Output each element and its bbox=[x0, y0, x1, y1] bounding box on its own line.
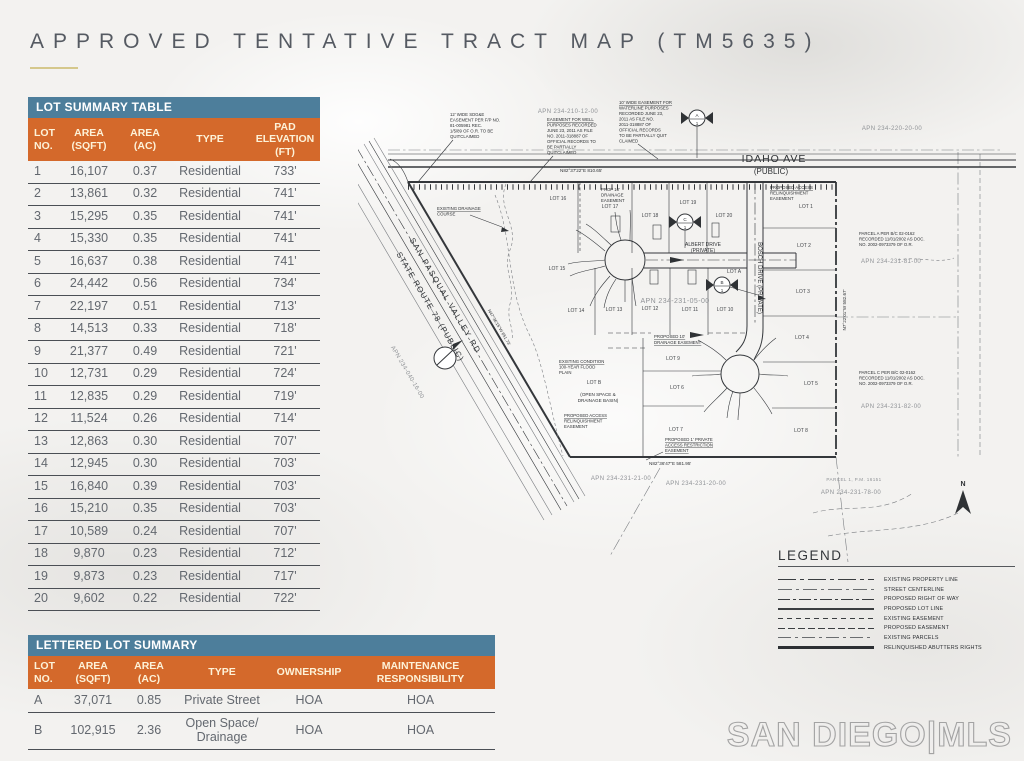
page: APPROVED TENTATIVE TRACT MAP (TM5635) LO… bbox=[0, 0, 1024, 761]
svg-text:PARCEL C PER B/C 02-0162: PARCEL C PER B/C 02-0162 bbox=[859, 370, 916, 375]
legend-row: PROPOSED LOT LINE bbox=[778, 604, 1015, 614]
cell-pad-elevation: 733' bbox=[250, 161, 320, 184]
svg-text:PROPOSED ACCESS: PROPOSED ACCESS bbox=[564, 413, 607, 418]
svg-text:EASEMENT: EASEMENT bbox=[564, 424, 588, 429]
lot-label: LOT 11 bbox=[682, 307, 698, 313]
legend-row: EXISTING PARCELS bbox=[778, 633, 1015, 643]
svg-text:PROPOSED 1' PRIVATE: PROPOSED 1' PRIVATE bbox=[665, 437, 713, 442]
table-row: 19 9,873 0.23 Residential 717' bbox=[28, 566, 320, 589]
svg-text:JUNE 23, 2011 AS FILE: JUNE 23, 2011 AS FILE bbox=[547, 128, 593, 133]
bottom-apns: APN 234-231-21-00 APN 234-231-20-00 PARC… bbox=[591, 476, 882, 496]
legend-line-street-centerline bbox=[778, 589, 874, 590]
cell-type: Residential bbox=[170, 521, 250, 544]
legend-line-relinquished-abutters bbox=[778, 646, 874, 649]
apn-top-right: APN 234-220-20-00 bbox=[862, 126, 922, 132]
legend-line-proposed-lot-line bbox=[778, 608, 874, 609]
svg-text:NO. 2002-0973379 OF O.R.: NO. 2002-0973379 OF O.R. bbox=[859, 381, 913, 386]
apn-bottom-center: APN 234-231-20-00 bbox=[666, 481, 726, 487]
cell-area-sqft: 16,637 bbox=[58, 251, 120, 274]
svg-text:(OPEN SPACE &: (OPEN SPACE & bbox=[580, 392, 615, 397]
cell-pad-elevation: 741' bbox=[250, 251, 320, 274]
lot-label: LOT 8 bbox=[794, 428, 808, 434]
cell-area-ac: 0.49 bbox=[120, 341, 170, 364]
lot-summary-header-row: LOT NO. AREA (SQFT) AREA (AC) TYPE PAD E… bbox=[28, 118, 320, 161]
cell-area-sqft: 9,873 bbox=[58, 566, 120, 589]
cell-area-sqft: 9,870 bbox=[58, 544, 120, 567]
table-row: 7 22,197 0.51 Residential 713' bbox=[28, 296, 320, 319]
cell-type: Residential bbox=[170, 364, 250, 387]
cell-area-ac: 0.30 bbox=[120, 454, 170, 477]
svg-text:PURPOSES RECORDED: PURPOSES RECORDED bbox=[547, 123, 597, 128]
svg-text:RECORDED JUNE 23,: RECORDED JUNE 23, bbox=[619, 111, 663, 116]
column-header: AREA (AC) bbox=[126, 656, 172, 689]
cell-area-ac: 0.24 bbox=[120, 521, 170, 544]
svg-text:QUITCLAIMED: QUITCLAIMED bbox=[450, 134, 479, 139]
cell-area-ac: 0.33 bbox=[120, 319, 170, 342]
cell-type: Residential bbox=[170, 206, 250, 229]
page-title: APPROVED TENTATIVE TRACT MAP (TM5635) bbox=[30, 30, 820, 54]
cell-pad-elevation: 707' bbox=[250, 521, 320, 544]
legend-items: EXISTING PROPERTY LINE STREET CENTERLINE… bbox=[778, 575, 1015, 653]
lot-label: LOT A bbox=[727, 269, 742, 275]
cell-maintenance: HOA bbox=[346, 689, 495, 713]
svg-text:B: B bbox=[720, 280, 723, 285]
cell-lot-no: 11 bbox=[28, 386, 58, 409]
cell-type: Residential bbox=[170, 184, 250, 207]
svg-text:DRAINAGE BASIN): DRAINAGE BASIN) bbox=[578, 398, 619, 403]
cell-area-sqft: 14,513 bbox=[58, 319, 120, 342]
svg-text:DRAINAGE EASEMENT: DRAINAGE EASEMENT bbox=[654, 340, 702, 345]
idaho-ave-road: IDAHO AVE (PUBLIC) N82°37'22"E 810.65' bbox=[388, 153, 1016, 182]
lot-label: LOT 19 bbox=[680, 200, 697, 206]
table-row: 1 16,107 0.37 Residential 733' bbox=[28, 161, 320, 184]
cell-type: Residential bbox=[170, 409, 250, 432]
apn-top-center: APN 234-210-12-00 bbox=[538, 109, 598, 115]
cell-area-sqft: 10,589 bbox=[58, 521, 120, 544]
svg-text:TO BE PARTIALLY QUIT: TO BE PARTIALLY QUIT bbox=[619, 133, 667, 138]
cell-area-sqft: 13,861 bbox=[58, 184, 120, 207]
cell-area-ac: 0.30 bbox=[120, 431, 170, 454]
apn-center: APN 234-231-05-00 bbox=[640, 298, 709, 305]
cell-area-ac: 0.22 bbox=[120, 589, 170, 612]
table-row: 10 12,731 0.29 Residential 724' bbox=[28, 364, 320, 387]
cell-area-ac: 0.29 bbox=[120, 386, 170, 409]
cell-pad-elevation: 724' bbox=[250, 364, 320, 387]
cell-pad-elevation: 712' bbox=[250, 544, 320, 567]
north-arrow: N bbox=[955, 481, 971, 514]
lot-label: LOT B bbox=[587, 380, 602, 386]
column-header: LOT NO. bbox=[28, 656, 60, 689]
cell-area-sqft: 102,915 bbox=[60, 713, 126, 750]
cell-pad-elevation: 734' bbox=[250, 274, 320, 297]
legend-line-existing-property bbox=[778, 579, 874, 580]
detail-marker-a: A 1 bbox=[681, 110, 713, 158]
lot-label: LOT 4 bbox=[795, 335, 809, 341]
cell-area-ac: 0.35 bbox=[120, 206, 170, 229]
svg-text:1: 1 bbox=[721, 288, 724, 293]
cell-pad-elevation: 713' bbox=[250, 296, 320, 319]
cell-area-ac: 0.85 bbox=[126, 689, 172, 713]
svg-text:PARCEL A PER B/C 02-0162: PARCEL A PER B/C 02-0162 bbox=[859, 231, 915, 236]
table-row: 9 21,377 0.49 Residential 721' bbox=[28, 341, 320, 364]
apn-parcel-c: APN 234-231-82-00 bbox=[861, 404, 921, 410]
cell-pad-elevation: 703' bbox=[250, 454, 320, 477]
cell-area-sqft: 12,835 bbox=[58, 386, 120, 409]
cell-area-ac: 2.36 bbox=[126, 713, 172, 750]
svg-text:100-YEAR FLOOD: 100-YEAR FLOOD bbox=[559, 365, 595, 370]
lot-label: LOT 9 bbox=[666, 356, 680, 362]
lot-summary-table-title: LOT SUMMARY TABLE bbox=[28, 97, 320, 118]
cell-area-ac: 0.26 bbox=[120, 409, 170, 432]
lot-label: LOT 6 bbox=[670, 385, 684, 391]
cell-lot-no: 20 bbox=[28, 589, 58, 612]
lettered-lot-summary-table: LETTERED LOT SUMMARY LOT NO. AREA (SQFT)… bbox=[28, 635, 495, 750]
svg-text:OFFICIAL RECORDS TO: OFFICIAL RECORDS TO bbox=[547, 139, 597, 144]
column-header: AREA (SQFT) bbox=[58, 118, 120, 161]
cell-area-sqft: 15,295 bbox=[58, 206, 120, 229]
cell-lot-no: 7 bbox=[28, 296, 58, 319]
legend-row: EXISTING PROPERTY LINE bbox=[778, 575, 1015, 585]
svg-text:PLAIN: PLAIN bbox=[559, 370, 571, 375]
legend-row: PROPOSED EASEMENT bbox=[778, 623, 1015, 633]
cell-pad-elevation: 714' bbox=[250, 409, 320, 432]
cell-lot-no: 3 bbox=[28, 206, 58, 229]
cell-pad-elevation: 718' bbox=[250, 319, 320, 342]
lot-label: LOT 1 bbox=[799, 204, 813, 210]
svg-text:PROP 10': PROP 10' bbox=[601, 187, 620, 192]
cell-type: Residential bbox=[170, 431, 250, 454]
cell-area-ac: 0.38 bbox=[120, 251, 170, 274]
cell-area-ac: 0.23 bbox=[120, 544, 170, 567]
column-header: MAINTENANCE RESPONSIBILITY bbox=[346, 656, 495, 689]
cell-type: Residential bbox=[170, 386, 250, 409]
apn-parcel-a: APN 234-231-81-00 bbox=[861, 259, 921, 265]
cell-area-sqft: 15,210 bbox=[58, 499, 120, 522]
table-row: 20 9,602 0.22 Residential 722' bbox=[28, 589, 320, 612]
lot-label: LOT 16 bbox=[550, 196, 567, 202]
table-row: 18 9,870 0.23 Residential 712' bbox=[28, 544, 320, 567]
apn-bottom-left: APN 234-231-21-00 bbox=[591, 476, 651, 482]
table-row: A 37,071 0.85 Private Street HOA HOA bbox=[28, 689, 495, 713]
svg-text:2011 AS FILE NO.: 2011 AS FILE NO. bbox=[619, 117, 654, 122]
svg-text:EASEMENT FOR WELL: EASEMENT FOR WELL bbox=[547, 117, 594, 122]
cell-area-ac: 0.37 bbox=[120, 161, 170, 184]
cell-type: Residential bbox=[170, 341, 250, 364]
svg-text:EXISTING DRAINAGE: EXISTING DRAINAGE bbox=[437, 206, 481, 211]
svg-text:1/5/89 OF O.R. TO BE: 1/5/89 OF O.R. TO BE bbox=[450, 129, 493, 134]
cell-type: Residential bbox=[170, 566, 250, 589]
idaho-ave-public-label: (PUBLIC) bbox=[754, 167, 789, 176]
cell-area-sqft: 16,107 bbox=[58, 161, 120, 184]
cell-area-sqft: 21,377 bbox=[58, 341, 120, 364]
cell-area-ac: 0.32 bbox=[120, 184, 170, 207]
cell-lot-no: 5 bbox=[28, 251, 58, 274]
column-header: AREA (SQFT) bbox=[60, 656, 126, 689]
legend: LEGEND EXISTING PROPERTY LINE STREET CEN… bbox=[778, 548, 1015, 653]
svg-text:1: 1 bbox=[684, 225, 687, 230]
lot-label: LOT 20 bbox=[716, 213, 733, 219]
svg-text:ACCESS RESTRICTION: ACCESS RESTRICTION bbox=[665, 443, 713, 448]
cell-type: Residential bbox=[170, 589, 250, 612]
cell-area-sqft: 12,945 bbox=[58, 454, 120, 477]
cell-pad-elevation: 741' bbox=[250, 229, 320, 252]
lot-label: LOT 2 bbox=[797, 243, 811, 249]
cell-pad-elevation: 722' bbox=[250, 589, 320, 612]
cell-pad-elevation: 719' bbox=[250, 386, 320, 409]
svg-text:RELINQUISHMENT: RELINQUISHMENT bbox=[770, 191, 809, 196]
cell-pad-elevation: 717' bbox=[250, 566, 320, 589]
svg-text:12' WIDE SDG&E: 12' WIDE SDG&E bbox=[450, 112, 484, 117]
svg-text:10' WIDE EASEMENT FOR: 10' WIDE EASEMENT FOR bbox=[619, 100, 672, 105]
svg-text:EXISTING CONDITION: EXISTING CONDITION bbox=[559, 359, 604, 364]
apn-west-road: APN 234-040-16-00 bbox=[389, 345, 425, 400]
cell-pad-elevation: 741' bbox=[250, 184, 320, 207]
legend-row: PROPOSED RIGHT OF WAY bbox=[778, 594, 1015, 604]
lot-label: LOT 7 bbox=[669, 427, 683, 433]
lettered-lot-header-row: LOT NO. AREA (SQFT) AREA (AC) TYPE OWNER… bbox=[28, 656, 495, 689]
cell-type: Private Street bbox=[172, 689, 272, 713]
cell-ownership: HOA bbox=[272, 689, 346, 713]
cell-lot-no: 9 bbox=[28, 341, 58, 364]
cell-lot-no: 14 bbox=[28, 454, 58, 477]
cell-area-sqft: 15,330 bbox=[58, 229, 120, 252]
table-row: 15 16,840 0.39 Residential 703' bbox=[28, 476, 320, 499]
cell-type: Residential bbox=[170, 499, 250, 522]
lot-summary-body: 1 16,107 0.37 Residential 733' 2 13,861 … bbox=[28, 161, 320, 611]
table-row: 8 14,513 0.33 Residential 718' bbox=[28, 319, 320, 342]
column-header: TYPE bbox=[170, 118, 250, 161]
bearing-east: N7°22'01"W 582.67' bbox=[842, 289, 847, 330]
cell-type: Residential bbox=[170, 319, 250, 342]
cell-area-ac: 0.56 bbox=[120, 274, 170, 297]
cell-lot-no: 8 bbox=[28, 319, 58, 342]
table-row: 3 15,295 0.35 Residential 741' bbox=[28, 206, 320, 229]
subdivision-boundary bbox=[408, 182, 836, 457]
cell-pad-elevation: 707' bbox=[250, 431, 320, 454]
svg-text:N: N bbox=[960, 481, 965, 488]
table-row: 2 13,861 0.32 Residential 741' bbox=[28, 184, 320, 207]
albert-drive-private-label: (PRIVATE) bbox=[691, 248, 715, 254]
legend-row: EXISTING EASEMENT bbox=[778, 614, 1015, 624]
cell-area-ac: 0.35 bbox=[120, 499, 170, 522]
parcel-notes-right: PARCEL A PER B/C 02-0162 RECORDED 11/01/… bbox=[859, 231, 954, 410]
cell-lot-no: 17 bbox=[28, 521, 58, 544]
cell-pad-elevation: 721' bbox=[250, 341, 320, 364]
lot-label: LOT 5 bbox=[804, 381, 818, 387]
svg-text:RELINQUISHMENT: RELINQUISHMENT bbox=[564, 419, 603, 424]
svg-text:NO. 2011-318887 OF: NO. 2011-318887 OF bbox=[547, 134, 588, 139]
cell-lot-no: 15 bbox=[28, 476, 58, 499]
svg-text:81-005981 REC.: 81-005981 REC. bbox=[450, 123, 482, 128]
svg-text:2011-318887 OF: 2011-318887 OF bbox=[619, 122, 652, 127]
tract-map: IDAHO AVE (PUBLIC) N82°37'22"E 810.65' S… bbox=[358, 88, 1018, 562]
table-row: 16 15,210 0.35 Residential 703' bbox=[28, 499, 320, 522]
cell-area-sqft: 12,863 bbox=[58, 431, 120, 454]
cell-lot-no: 2 bbox=[28, 184, 58, 207]
legend-row: RELINQUISHED ABUTTERS RIGHTS bbox=[778, 643, 1015, 653]
column-header: TYPE bbox=[172, 656, 272, 689]
lot-label: LOT 17 bbox=[602, 204, 619, 210]
cell-type: Residential bbox=[170, 274, 250, 297]
lot-label: LOT 13 bbox=[606, 307, 623, 313]
cell-lot-no: 12 bbox=[28, 409, 58, 432]
lot-label: LOT 15 bbox=[549, 266, 566, 272]
cell-type: Residential bbox=[170, 454, 250, 477]
cell-area-sqft: 9,602 bbox=[58, 589, 120, 612]
bearing-top: N82°37'22"E 810.65' bbox=[560, 168, 602, 173]
table-row: 6 24,442 0.56 Residential 734' bbox=[28, 274, 320, 297]
cell-type: Residential bbox=[170, 296, 250, 319]
sandiego-mls-watermark: SAN DIEGO|MLS bbox=[727, 716, 1012, 755]
lot-label: LOT 10 bbox=[717, 307, 734, 313]
easement-notes-top: 12' WIDE SDG&E EASEMENT PER F/P NO. 81-0… bbox=[418, 100, 922, 182]
cell-maintenance: HOA bbox=[346, 713, 495, 750]
cell-lot-no: A bbox=[28, 689, 60, 713]
column-header: AREA (AC) bbox=[120, 118, 170, 161]
bearing-bottom: N82°36'47"E 581.95' bbox=[649, 461, 691, 466]
bearing-west: N47°36'15"W 651.73' bbox=[487, 308, 512, 346]
cell-area-sqft: 37,071 bbox=[60, 689, 126, 713]
cell-type: Residential bbox=[170, 161, 250, 184]
bosch-drive-label: BOSCH DRIVE (PRIVATE) bbox=[756, 242, 762, 314]
cell-area-ac: 0.29 bbox=[120, 364, 170, 387]
parcel-1-label: PARCEL 1, P.M. 16151 bbox=[826, 477, 881, 482]
table-row: B 102,915 2.36 Open Space/ Drainage HOA … bbox=[28, 713, 495, 750]
cell-lot-no: 1 bbox=[28, 161, 58, 184]
cell-type: Residential bbox=[170, 544, 250, 567]
cell-lot-no: 4 bbox=[28, 229, 58, 252]
cell-lot-no: 19 bbox=[28, 566, 58, 589]
svg-text:QUITCLAIMED: QUITCLAIMED bbox=[547, 150, 576, 155]
lettered-lot-summary-title: LETTERED LOT SUMMARY bbox=[28, 635, 495, 656]
gold-rule bbox=[30, 67, 78, 69]
legend-title: LEGEND bbox=[778, 548, 1015, 567]
cell-area-ac: 0.35 bbox=[120, 229, 170, 252]
cell-area-sqft: 24,442 bbox=[58, 274, 120, 297]
table-row: 11 12,835 0.29 Residential 719' bbox=[28, 386, 320, 409]
cell-lot-no: B bbox=[28, 713, 60, 750]
svg-text:EASEMENT: EASEMENT bbox=[770, 196, 794, 201]
svg-text:NO. 2002-0973379 OF O.R.: NO. 2002-0973379 OF O.R. bbox=[859, 242, 913, 247]
cell-lot-no: 6 bbox=[28, 274, 58, 297]
svg-text:BE PARTIALLY: BE PARTIALLY bbox=[547, 145, 577, 150]
legend-line-existing-parcels bbox=[778, 637, 874, 638]
legend-line-existing-easement bbox=[778, 618, 874, 619]
legend-row: STREET CENTERLINE bbox=[778, 585, 1015, 595]
svg-text:DRAINAGE: DRAINAGE bbox=[601, 193, 624, 198]
svg-text:RECORDED 11/01/2002 AS DOC.: RECORDED 11/01/2002 AS DOC. bbox=[859, 376, 925, 381]
svg-text:EASEMENT PER F/P NO.: EASEMENT PER F/P NO. bbox=[450, 118, 500, 123]
column-header: PAD ELEVATION (FT) bbox=[250, 118, 320, 161]
svg-text:RECORDED 11/01/2002 AS DOC.: RECORDED 11/01/2002 AS DOC. bbox=[859, 237, 925, 242]
cell-area-ac: 0.39 bbox=[120, 476, 170, 499]
apn-bottom-right: APN 234-231-78-00 bbox=[821, 490, 881, 496]
cell-type: Residential bbox=[170, 476, 250, 499]
cell-pad-elevation: 703' bbox=[250, 476, 320, 499]
svg-text:PROPOSED 10': PROPOSED 10' bbox=[654, 334, 685, 339]
legend-line-proposed-easement bbox=[778, 628, 874, 629]
cell-area-sqft: 16,840 bbox=[58, 476, 120, 499]
cell-pad-elevation: 741' bbox=[250, 206, 320, 229]
cell-area-sqft: 11,524 bbox=[58, 409, 120, 432]
legend-line-proposed-row bbox=[778, 599, 874, 600]
lot-label: LOT 14 bbox=[568, 308, 585, 314]
cell-area-ac: 0.23 bbox=[120, 566, 170, 589]
column-header: LOT NO. bbox=[28, 118, 58, 161]
svg-text:1: 1 bbox=[696, 121, 699, 126]
cell-lot-no: 10 bbox=[28, 364, 58, 387]
cell-lot-no: 16 bbox=[28, 499, 58, 522]
existing-property-lines bbox=[388, 150, 1000, 562]
table-row: 5 16,637 0.38 Residential 741' bbox=[28, 251, 320, 274]
table-row: 14 12,945 0.30 Residential 703' bbox=[28, 454, 320, 477]
table-row: 17 10,589 0.24 Residential 707' bbox=[28, 521, 320, 544]
cell-lot-no: 13 bbox=[28, 431, 58, 454]
cell-area-sqft: 12,731 bbox=[58, 364, 120, 387]
svg-text:OFFICIAL RECORDS: OFFICIAL RECORDS bbox=[619, 128, 661, 133]
lot-label: LOT 12 bbox=[642, 306, 659, 312]
table-row: 13 12,863 0.30 Residential 707' bbox=[28, 431, 320, 454]
cell-area-sqft: 22,197 bbox=[58, 296, 120, 319]
cell-type: Residential bbox=[170, 229, 250, 252]
lot-label: LOT 3 bbox=[796, 289, 810, 295]
svg-text:EASEMENT: EASEMENT bbox=[601, 198, 625, 203]
column-header: OWNERSHIP bbox=[272, 656, 346, 689]
cell-lot-no: 18 bbox=[28, 544, 58, 567]
cell-type: Residential bbox=[170, 251, 250, 274]
cell-pad-elevation: 703' bbox=[250, 499, 320, 522]
idaho-ave-label: IDAHO AVE bbox=[742, 153, 807, 165]
lot-label: LOT 18 bbox=[642, 213, 659, 219]
svg-text:PROPOSED ACCESS: PROPOSED ACCESS bbox=[770, 185, 813, 190]
lot-summary-table: LOT SUMMARY TABLE LOT NO. AREA (SQFT) AR… bbox=[28, 97, 320, 611]
cell-ownership: HOA bbox=[272, 713, 346, 750]
lettered-lot-body: A 37,071 0.85 Private Street HOA HOA B 1… bbox=[28, 689, 495, 750]
table-row: 12 11,524 0.26 Residential 714' bbox=[28, 409, 320, 432]
cell-area-ac: 0.51 bbox=[120, 296, 170, 319]
svg-text:COURSE: COURSE bbox=[437, 212, 456, 217]
svg-text:WATERLINE PURPOSES: WATERLINE PURPOSES bbox=[619, 106, 669, 111]
svg-text:EASEMENT: EASEMENT bbox=[665, 448, 689, 453]
table-row: 4 15,330 0.35 Residential 741' bbox=[28, 229, 320, 252]
cell-type: Open Space/ Drainage bbox=[172, 713, 272, 750]
svg-text:CLAIMED: CLAIMED bbox=[619, 139, 638, 144]
